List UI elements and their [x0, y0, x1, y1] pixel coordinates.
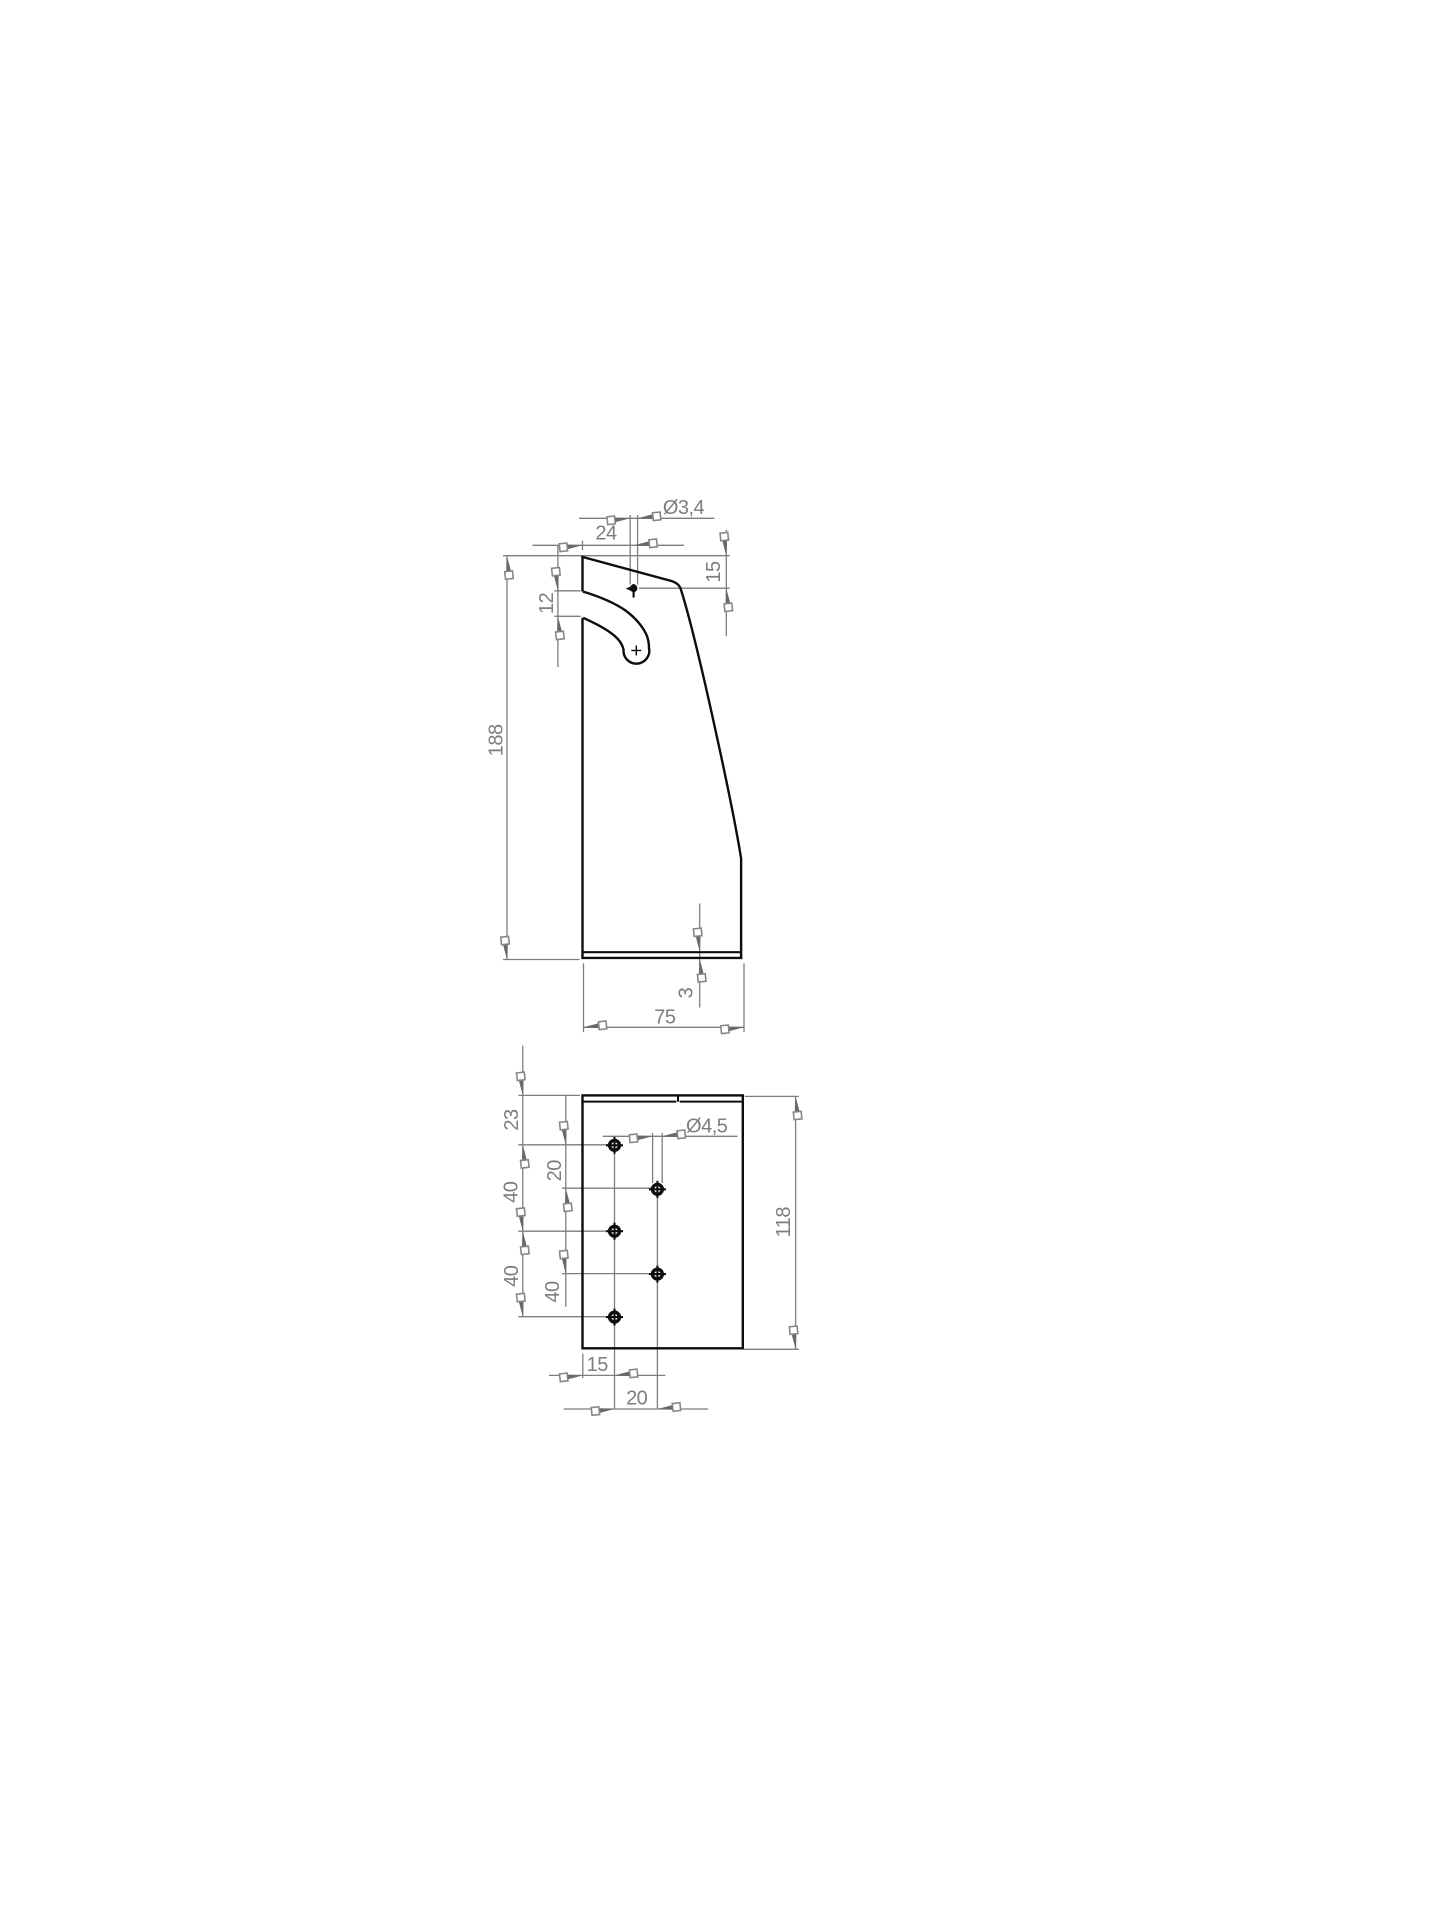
svg-text:23: 23 [501, 1109, 523, 1131]
svg-text:Ø4,5: Ø4,5 [686, 1115, 728, 1137]
svg-text:118: 118 [773, 1207, 795, 1238]
svg-text:3: 3 [676, 987, 698, 998]
svg-text:24: 24 [595, 522, 617, 544]
svg-text:40: 40 [501, 1181, 523, 1203]
svg-text:15: 15 [587, 1354, 609, 1376]
svg-text:40: 40 [501, 1265, 523, 1287]
svg-text:15: 15 [703, 561, 725, 583]
svg-text:188: 188 [486, 724, 508, 756]
svg-text:40: 40 [542, 1281, 564, 1303]
svg-text:20: 20 [626, 1387, 648, 1409]
svg-text:Ø3,4: Ø3,4 [663, 497, 705, 519]
svg-text:75: 75 [654, 1007, 676, 1029]
svg-text:12: 12 [536, 592, 558, 614]
svg-text:20: 20 [544, 1160, 566, 1182]
